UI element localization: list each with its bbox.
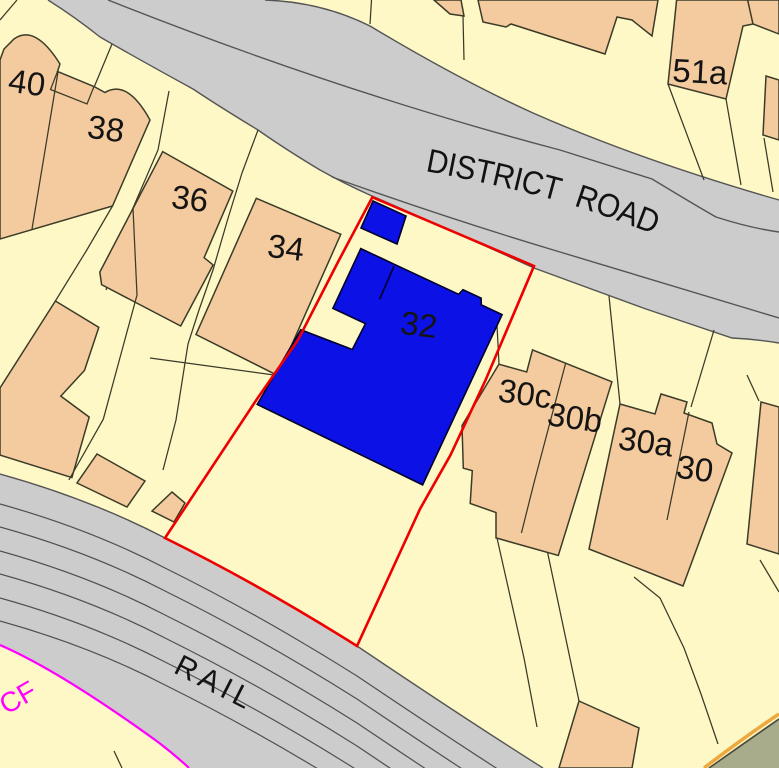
svg-text:30: 30 (674, 448, 716, 490)
svg-text:51a: 51a (672, 52, 730, 92)
svg-text:30c: 30c (496, 371, 554, 415)
svg-text:38: 38 (85, 108, 127, 150)
svg-text:34: 34 (265, 227, 306, 268)
svg-text:30a: 30a (616, 419, 676, 463)
svg-text:30b: 30b (545, 395, 605, 439)
svg-text:32: 32 (398, 304, 439, 345)
svg-text:36: 36 (169, 178, 210, 219)
svg-text:40: 40 (6, 62, 48, 104)
